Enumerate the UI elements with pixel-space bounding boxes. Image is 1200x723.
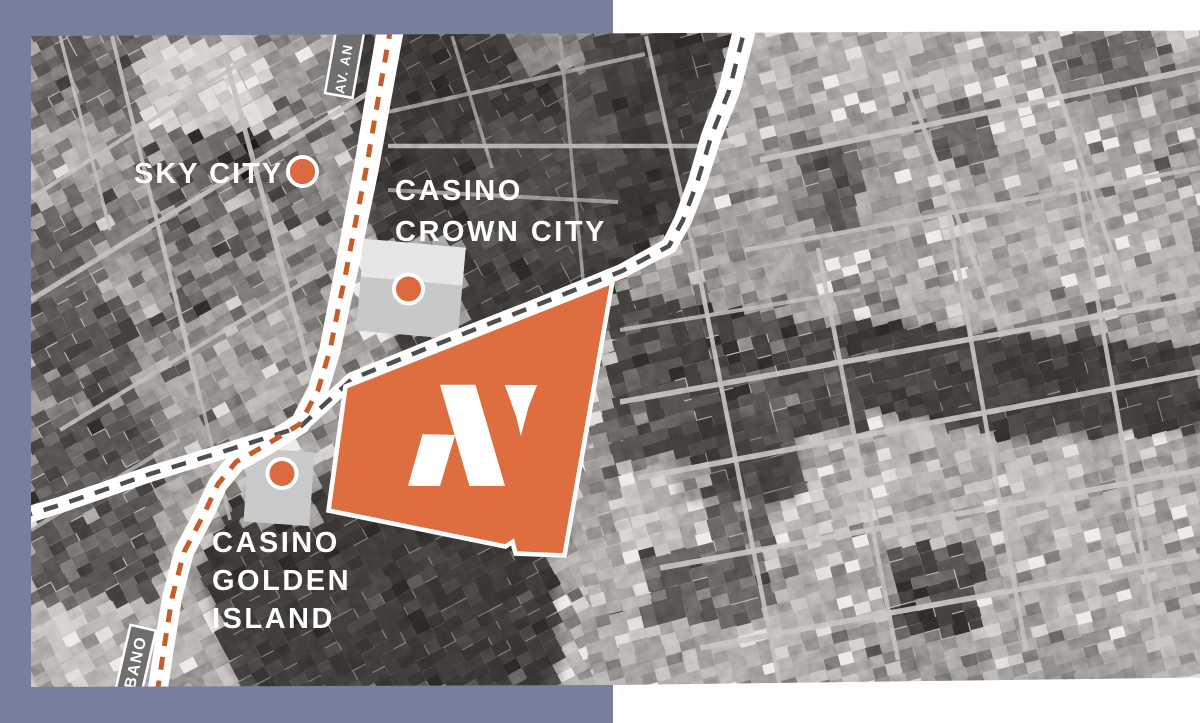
svg-text:GOLDEN: GOLDEN xyxy=(212,565,351,597)
svg-text:CROWN CITY: CROWN CITY xyxy=(395,216,607,248)
svg-text:CASINO: CASINO xyxy=(395,175,523,207)
svg-text:CASINO: CASINO xyxy=(212,527,340,559)
svg-text:SKY CITY: SKY CITY xyxy=(134,158,283,190)
svg-text:ISLAND: ISLAND xyxy=(212,603,335,635)
